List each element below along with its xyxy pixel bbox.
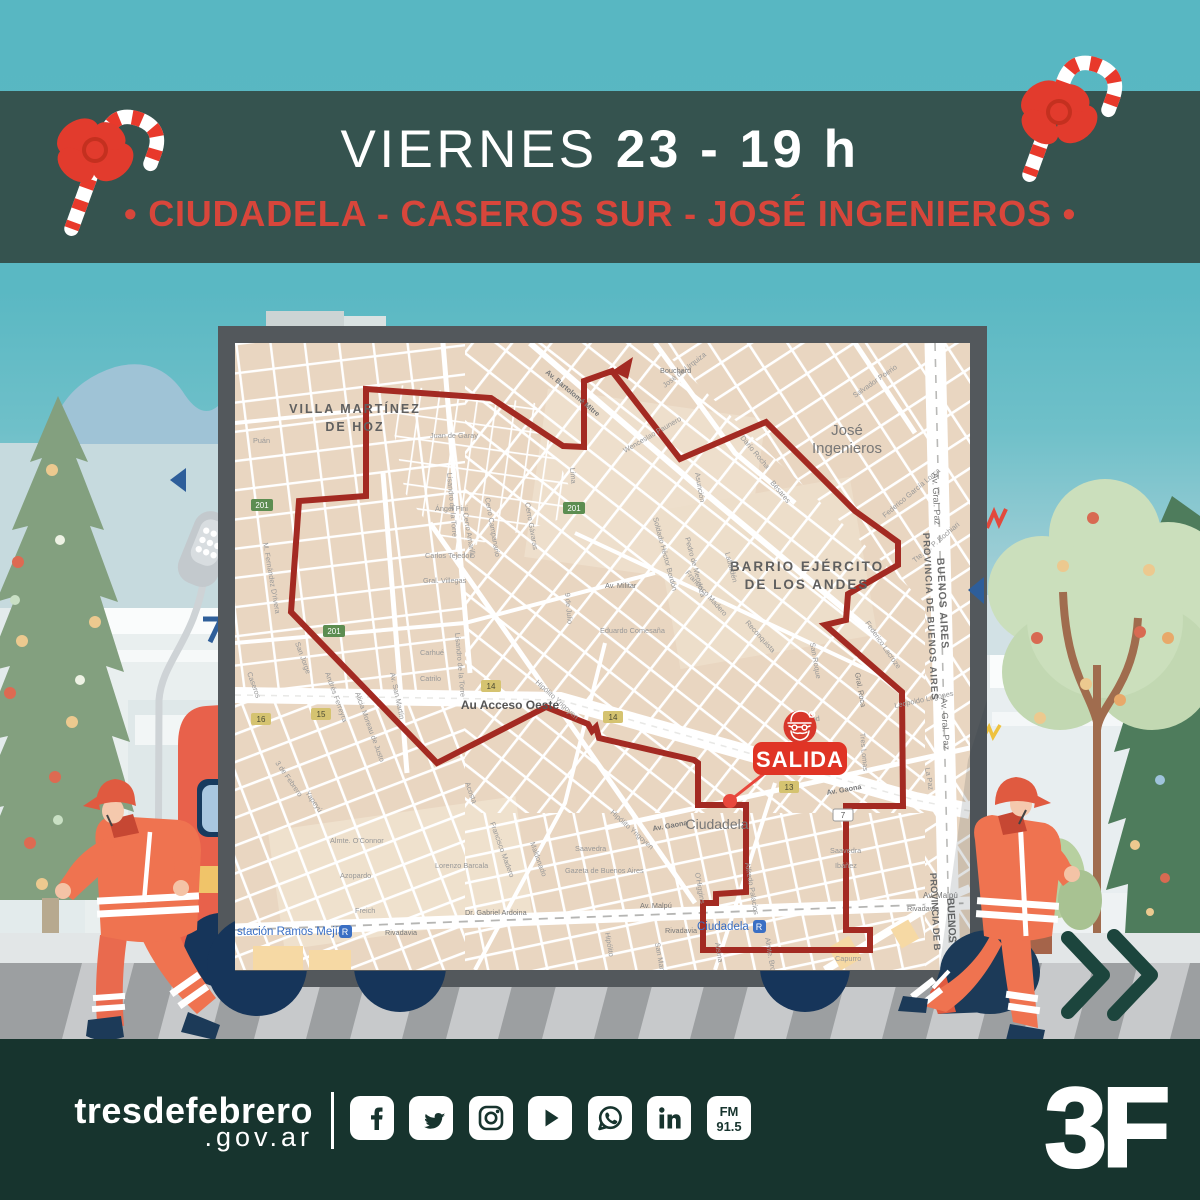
svg-text:FM: FM (720, 1104, 739, 1119)
svg-text:91.5: 91.5 (716, 1119, 741, 1134)
